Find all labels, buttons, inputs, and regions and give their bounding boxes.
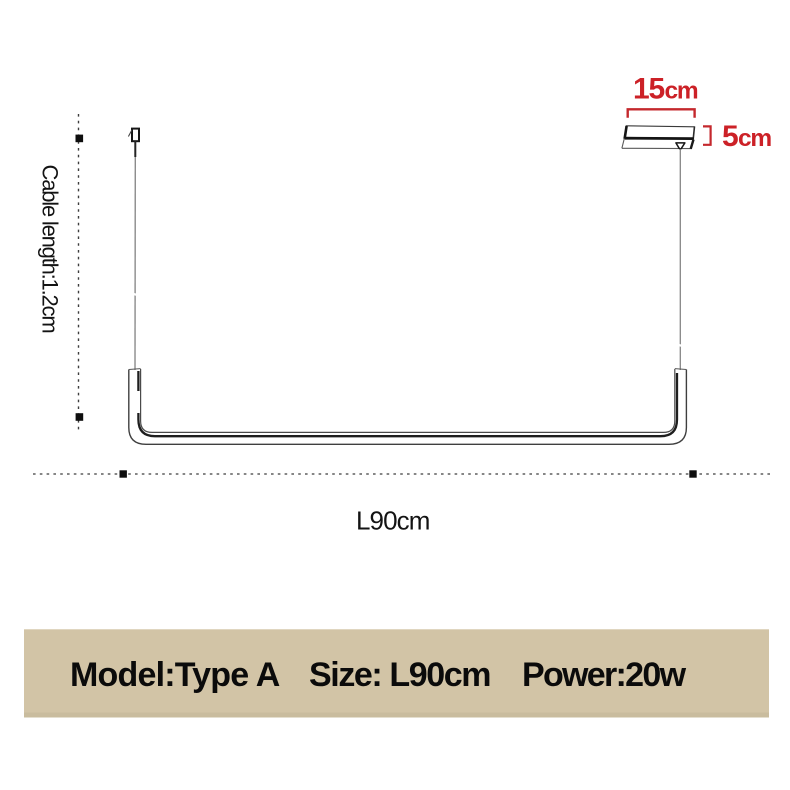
svg-text:Cable length:1.2cm: Cable length:1.2cm (38, 165, 63, 333)
svg-text:L90cm: L90cm (356, 506, 430, 536)
svg-text:15cm: 15cm (633, 73, 698, 106)
svg-text:5cm: 5cm (722, 120, 771, 153)
svg-text:Power:20w: Power:20w (522, 656, 687, 694)
svg-text:Model:Type A: Model:Type A (70, 656, 280, 694)
svg-text:Size: L90cm: Size: L90cm (309, 656, 490, 694)
